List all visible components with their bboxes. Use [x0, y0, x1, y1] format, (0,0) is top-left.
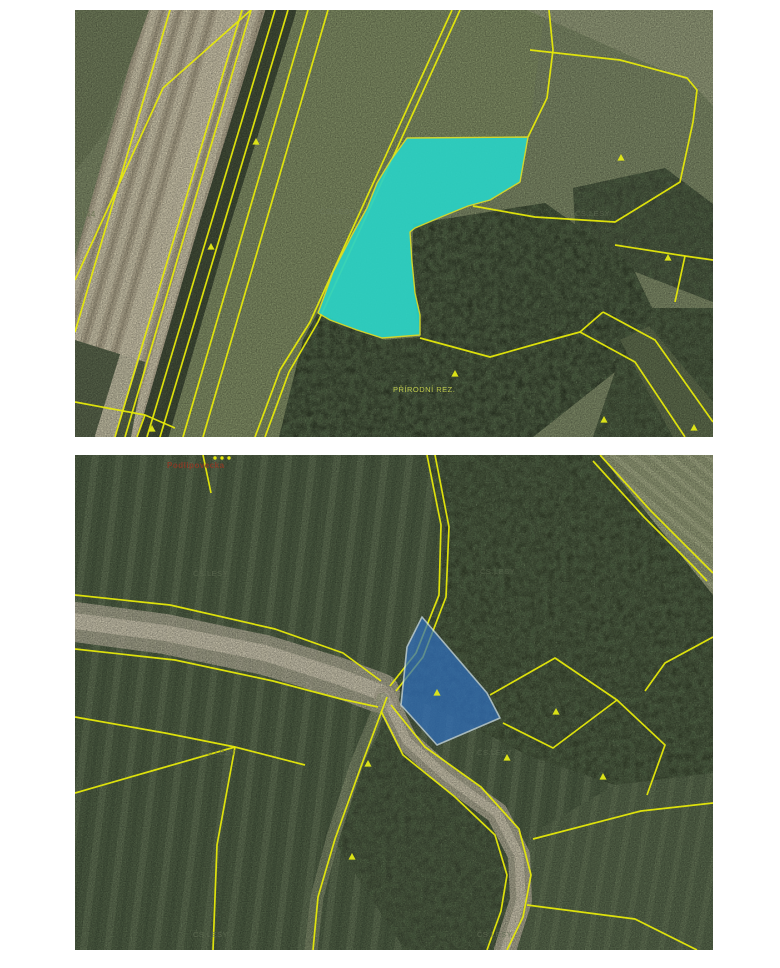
boundary-dot	[227, 456, 230, 459]
map-top-svg: 144ČS.LESYČS.LESYPŘÍRODNÍ REZ.	[75, 10, 713, 437]
map-label: ČS.LESY	[477, 748, 512, 757]
boundary-dot	[213, 456, 216, 459]
map-label: PŘÍRODNÍ REZ.	[393, 385, 455, 394]
map-label: ČS.LESY	[193, 569, 228, 578]
map-label: ČS.LESY	[320, 207, 355, 216]
map-label: Podlipovecka	[167, 461, 225, 470]
map-label: ČS.LESY	[477, 930, 512, 939]
photo-grain	[75, 455, 713, 950]
map-bottom-svg: PodlipoveckaČS.LESYČS.LESYČS.LESYČS.LESY…	[75, 455, 713, 950]
map-label: 144	[81, 210, 96, 219]
cadastral-orthophoto-page: 144ČS.LESYČS.LESYPŘÍRODNÍ REZ. Podlipove…	[0, 0, 780, 968]
map-label: ČS.LESY	[193, 930, 228, 939]
map-label: ČS.LESY	[201, 748, 236, 757]
boundary-dot	[220, 456, 223, 459]
aerial-map-bottom: PodlipoveckaČS.LESYČS.LESYČS.LESYČS.LESY…	[75, 455, 713, 950]
aerial-map-top: 144ČS.LESYČS.LESYPŘÍRODNÍ REZ.	[75, 10, 713, 437]
map-label: ČS.LESY	[575, 209, 610, 218]
map-label: ČS.LESY	[480, 567, 515, 576]
